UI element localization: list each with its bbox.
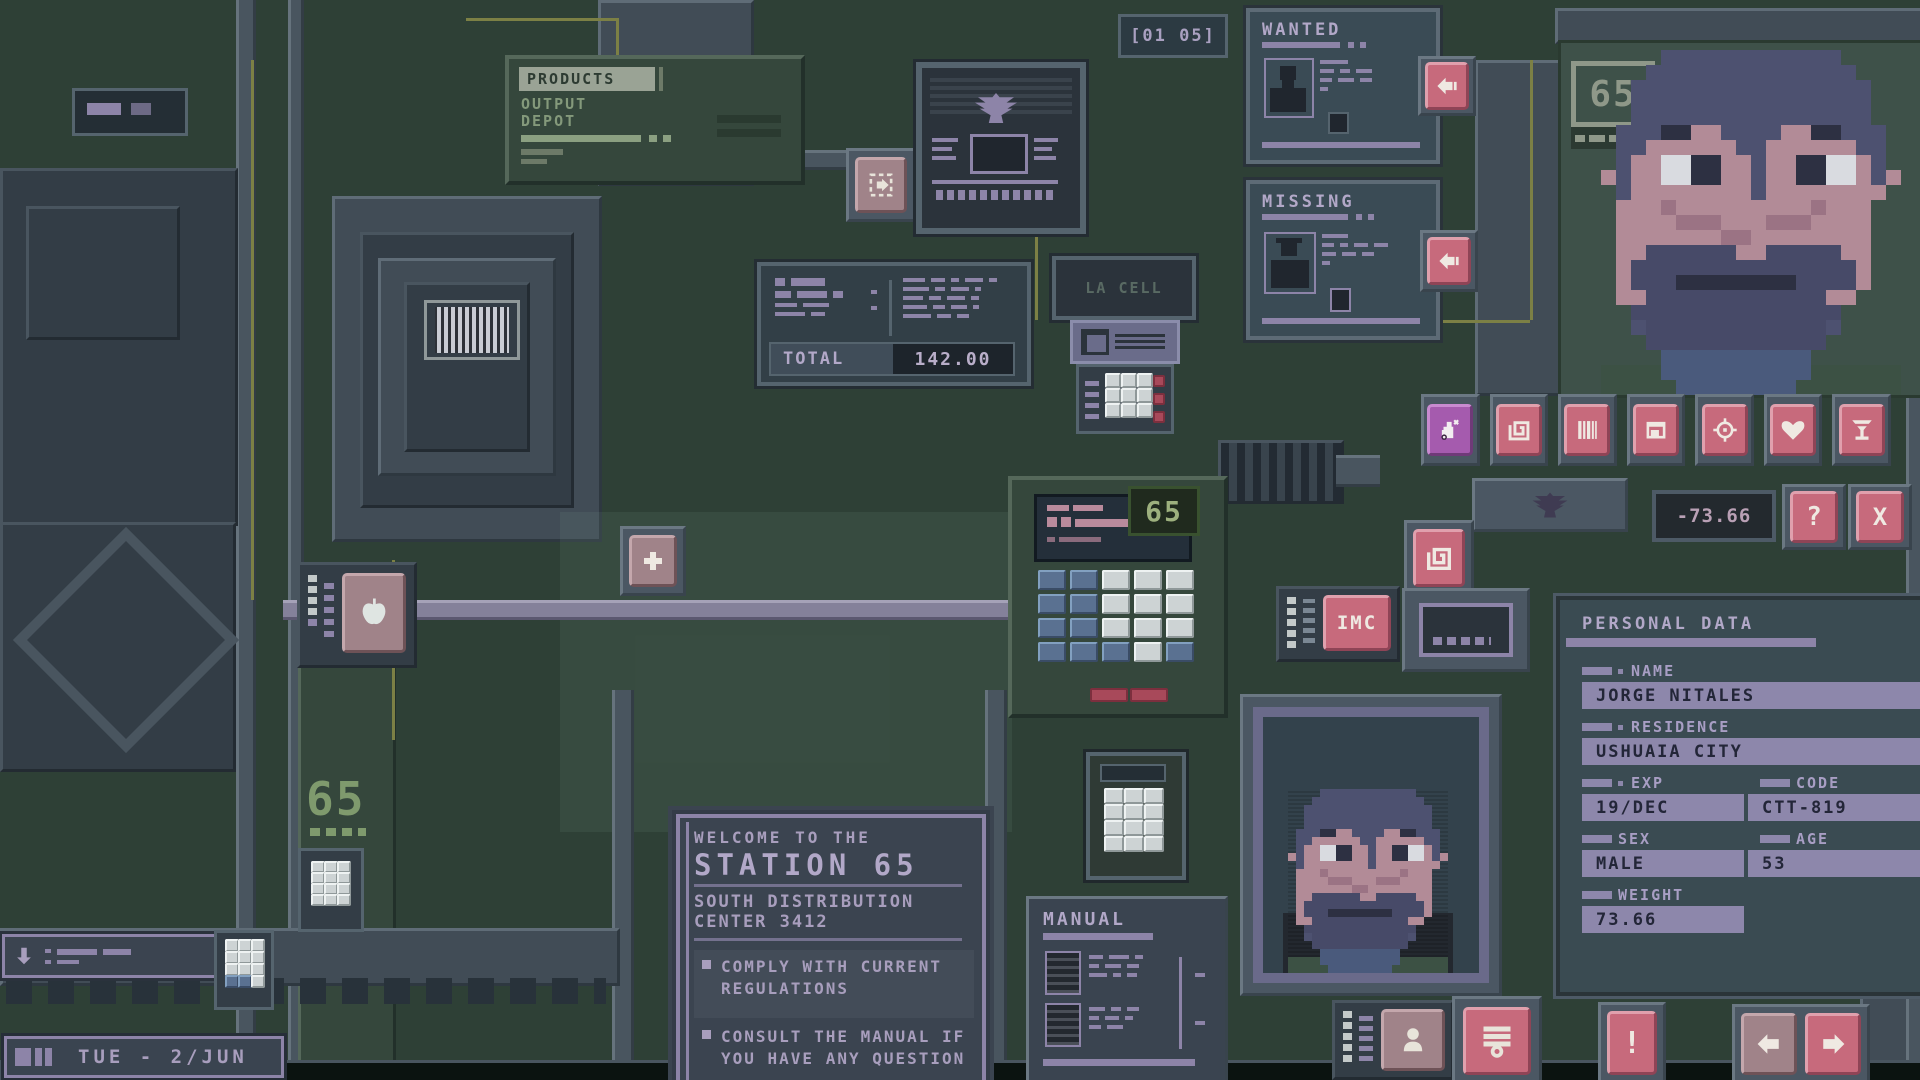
key[interactable]	[1137, 373, 1153, 388]
indicator-glyphs	[324, 577, 334, 637]
key[interactable]	[1104, 788, 1124, 804]
personal-data-title: PERSONAL DATA	[1582, 614, 1754, 634]
ticker-display	[2, 934, 222, 978]
wall-keypad	[214, 930, 274, 1010]
panel	[1218, 440, 1344, 504]
dot	[1348, 42, 1354, 48]
arrow-left-bar-icon	[1436, 75, 1458, 97]
decor-dash	[521, 149, 563, 155]
indicator-glyphs	[1359, 1013, 1373, 1061]
heart-icon	[1780, 417, 1806, 443]
nav-frame	[1732, 1004, 1870, 1080]
toolbar-slot	[1627, 394, 1686, 466]
photo-box	[1264, 232, 1316, 294]
keypad-screen	[1100, 764, 1166, 782]
capture-icon	[867, 171, 895, 199]
customer-portrait	[1601, 50, 1901, 395]
register-red-key[interactable]	[1090, 688, 1128, 702]
missing-title: MISSING	[1262, 192, 1355, 212]
scroll-marker	[1195, 1021, 1205, 1025]
window-icon	[1081, 329, 1109, 355]
indicator-column	[308, 575, 317, 626]
total-row: TOTAL 142.00	[769, 342, 1015, 376]
key[interactable]	[1102, 570, 1130, 590]
exp-value: 19/DEC	[1582, 794, 1744, 821]
key[interactable]	[1124, 804, 1144, 820]
code-value: CTT-819	[1748, 794, 1920, 821]
total-label: TOTAL	[771, 344, 893, 374]
imc-button[interactable]: IMC	[1323, 595, 1391, 651]
key[interactable]	[1166, 594, 1194, 614]
dot	[871, 290, 877, 294]
sex-label: SEX	[1600, 830, 1651, 848]
key[interactable]	[1105, 403, 1121, 418]
indicator-glyphs	[1303, 599, 1315, 643]
key[interactable]	[311, 894, 325, 906]
toolbar-button-cocktail[interactable]	[1839, 404, 1885, 456]
manual-panel[interactable]: MANUAL	[1026, 896, 1228, 1080]
silhouette-neck	[1282, 80, 1294, 88]
plus-frame	[620, 526, 686, 596]
scroll-marker	[1195, 973, 1205, 977]
close-frame: X	[1848, 484, 1912, 550]
nav-right-button[interactable]	[1805, 1013, 1861, 1075]
alert-frame: !	[1598, 1002, 1666, 1080]
keypad-device	[1086, 752, 1186, 880]
page-counter: [01 05]	[1118, 14, 1228, 58]
keypad-labels	[1085, 375, 1099, 419]
key[interactable]	[1102, 594, 1130, 614]
capture-frame	[846, 148, 916, 222]
pipe	[1336, 455, 1380, 487]
help-button[interactable]: ?	[1790, 491, 1838, 543]
toolbar-button-spiral[interactable]	[1496, 404, 1542, 456]
display-block	[87, 103, 121, 115]
key[interactable]	[1104, 820, 1124, 836]
age-value: 53	[1748, 850, 1920, 877]
sign-inner-rule	[686, 822, 689, 1080]
toolbar-button-crate[interactable]	[1633, 404, 1679, 456]
products-panel: PRODUCTS OUTPUT DEPOT	[505, 55, 805, 185]
certificate-rule	[932, 180, 1058, 184]
key[interactable]	[1166, 642, 1194, 662]
bullet-square	[702, 1030, 711, 1039]
key[interactable]	[1104, 836, 1124, 852]
inspection-toolbar	[1421, 394, 1891, 462]
cell-display-text: LA CELL	[1085, 279, 1162, 297]
bottom-bar	[1262, 142, 1420, 148]
date-text: TUE - 2/JUN	[78, 1046, 248, 1068]
slot-device	[1402, 588, 1530, 672]
accent-wire	[1530, 60, 1533, 320]
eagle-plate	[1472, 478, 1628, 532]
manual-scrollbar[interactable]	[1179, 957, 1182, 1049]
key[interactable]	[251, 975, 265, 988]
red-dot-key	[1153, 393, 1165, 405]
barcode-icon	[1574, 417, 1600, 443]
total-value: 142.00	[893, 344, 1013, 374]
soap-ban-icon	[1437, 417, 1463, 443]
photo-box	[1264, 58, 1314, 118]
pipe	[612, 690, 634, 1080]
key[interactable]	[1070, 594, 1098, 614]
certificate-photo	[970, 134, 1028, 174]
key[interactable]	[1038, 570, 1066, 590]
cocktail-icon	[1849, 417, 1875, 443]
citizen-button[interactable]	[1381, 1009, 1445, 1071]
barcode-screen	[424, 300, 520, 360]
plus-button[interactable]	[629, 535, 677, 587]
progress-tick	[663, 135, 671, 142]
title-underline	[1043, 933, 1153, 940]
subpanel-lines	[1115, 331, 1165, 349]
title-underline	[1262, 214, 1348, 220]
toolbar-button-heart[interactable]	[1770, 404, 1816, 456]
toolbar-button-target[interactable]	[1702, 404, 1748, 456]
dot	[1360, 42, 1366, 48]
key[interactable]	[1144, 804, 1164, 820]
eagle-icon	[1530, 490, 1570, 520]
arrow-left-bar-icon	[1438, 250, 1460, 272]
bottom-bar	[1043, 1059, 1195, 1066]
pillar-graffiti: 65	[306, 772, 378, 826]
silhouette-head	[1281, 243, 1297, 256]
capture-button[interactable]	[855, 157, 907, 213]
at-button[interactable]	[1413, 529, 1465, 587]
key[interactable]	[1038, 642, 1066, 662]
spiral-icon	[1506, 417, 1532, 443]
indicator-column	[1287, 597, 1296, 648]
panel	[1555, 8, 1920, 44]
receipt-right	[903, 278, 997, 318]
vent-slot	[717, 129, 781, 137]
toolbar-slot	[1695, 394, 1754, 466]
certificate-left-lines	[932, 138, 958, 160]
key[interactable]	[324, 894, 338, 906]
poster-lines	[1322, 234, 1388, 265]
progress-tick	[649, 135, 657, 142]
ticker-lines	[45, 949, 131, 964]
age-label: AGE	[1778, 830, 1829, 848]
slot-opening	[1419, 603, 1513, 657]
products-title: PRODUCTS	[519, 67, 653, 91]
cell-keypad	[1076, 364, 1174, 434]
toolbar-button-barcode[interactable]	[1564, 404, 1610, 456]
eagle-icon	[972, 90, 1020, 126]
missing-arrow-button[interactable]	[1427, 237, 1471, 285]
key[interactable]	[225, 975, 239, 988]
key[interactable]	[1121, 373, 1137, 388]
help-frame: ?	[1782, 484, 1846, 550]
game-screen: PRODUCTS OUTPUT DEPOT [01 05] WANTED	[0, 0, 1920, 1080]
bullet-square	[702, 960, 711, 969]
imc-device: IMC	[1276, 586, 1400, 662]
dispatch-button[interactable]	[1463, 1007, 1531, 1075]
wanted-prev-frame	[1418, 56, 1476, 116]
panel	[1475, 60, 1561, 396]
key[interactable]	[1144, 820, 1164, 836]
name-label: NAME	[1600, 662, 1675, 680]
key[interactable]	[337, 894, 351, 906]
dispatch-frame	[1452, 996, 1542, 1080]
graffiti-underline	[310, 828, 366, 836]
id-photo-frame	[1240, 694, 1502, 996]
nav-left-button[interactable]	[1741, 1013, 1797, 1075]
sex-value: MALE	[1582, 850, 1744, 877]
key[interactable]	[1038, 594, 1066, 614]
accent-wire	[251, 60, 254, 600]
personal-data-panel: PERSONAL DATA NAME JORGE NITALES RESIDEN…	[1556, 596, 1920, 996]
apple-device	[297, 562, 417, 668]
silhouette-body	[1270, 88, 1306, 112]
cell-device-screen: LA CELL	[1052, 256, 1196, 320]
key[interactable]	[238, 975, 252, 988]
welcome-sign: WELCOME TO THE STATION 65 SOUTH DISTRIBU…	[676, 814, 986, 1080]
rule-text: COMPLY WITH CURRENT REGULATIONS	[721, 956, 966, 1012]
sign-rule	[694, 884, 962, 887]
weight-label: WEIGHT	[1600, 886, 1684, 904]
bottom-bar	[1262, 318, 1420, 324]
apple-icon	[354, 593, 394, 633]
welcome-sub1: SOUTH DISTRIBUTION	[694, 892, 914, 912]
progress-bar	[521, 135, 641, 142]
name-value: JORGE NITALES	[1582, 682, 1920, 709]
mini-display	[72, 88, 188, 136]
missing-poster[interactable]: MISSING	[1246, 180, 1440, 340]
key[interactable]	[1166, 618, 1194, 638]
certificate-plaque	[916, 62, 1086, 234]
products-line2: DEPOT	[521, 112, 576, 130]
toolbar-slot	[1490, 394, 1549, 466]
receipt-display: TOTAL 142.00	[757, 262, 1031, 386]
key[interactable]	[1104, 804, 1124, 820]
manual-page-thumb[interactable]	[1045, 951, 1081, 995]
register-keypad[interactable]	[1038, 570, 1198, 680]
key[interactable]	[1134, 570, 1162, 590]
key[interactable]	[1137, 403, 1153, 418]
wanted-title: WANTED	[1262, 20, 1341, 40]
key[interactable]	[1070, 618, 1098, 638]
toolbar-slot	[1764, 394, 1823, 466]
display-block	[131, 103, 151, 115]
exp-label: EXP	[1600, 774, 1664, 792]
key[interactable]	[1070, 570, 1098, 590]
welcome-sub2: CENTER 3412	[694, 912, 829, 932]
crate-icon	[1643, 417, 1669, 443]
accent-wire	[466, 18, 616, 21]
manual-entry-lines	[1089, 955, 1143, 977]
red-dot-key	[1153, 411, 1165, 423]
dot	[1356, 214, 1362, 220]
title-underline	[1262, 42, 1340, 48]
certificate-caption-glyphs	[936, 190, 1054, 200]
residence-value: USHUAIA CITY	[1582, 738, 1920, 765]
key[interactable]	[1102, 642, 1130, 662]
dot	[871, 306, 877, 310]
citizen-device	[1332, 1000, 1454, 1080]
certificate-right-lines	[1034, 138, 1058, 160]
welcome-title: STATION 65	[694, 848, 919, 882]
sign-rule	[694, 938, 962, 941]
key[interactable]	[1105, 373, 1121, 388]
key[interactable]	[1134, 618, 1162, 638]
arrow-right-icon	[1820, 1031, 1846, 1057]
alert-button[interactable]: !	[1607, 1011, 1657, 1075]
key[interactable]	[1102, 618, 1130, 638]
manual-title: MANUAL	[1043, 909, 1126, 930]
register-red-key[interactable]	[1130, 688, 1168, 702]
rule-item: CONSULT THE MANUAL IF YOU HAVE ANY QUEST…	[694, 1020, 974, 1080]
arrow-left-icon	[1756, 1031, 1782, 1057]
key[interactable]	[1134, 642, 1162, 662]
phone-device	[298, 848, 364, 932]
manual-entry-lines	[1089, 1007, 1139, 1029]
silhouette-body	[1271, 260, 1309, 288]
key[interactable]	[1105, 388, 1121, 403]
key[interactable]	[1124, 836, 1144, 852]
key[interactable]	[1070, 642, 1098, 662]
poster-lines	[1320, 60, 1372, 91]
pipe	[985, 690, 1007, 1080]
key[interactable]	[1124, 820, 1144, 836]
dot	[1368, 214, 1374, 220]
stamp-stack-icon	[1477, 1021, 1517, 1061]
toolbar-slot	[1421, 394, 1480, 466]
plus-icon	[641, 549, 665, 573]
key[interactable]	[1144, 836, 1164, 852]
stamp-box	[1328, 112, 1349, 134]
balance-display: -73.66	[1652, 490, 1776, 542]
toolbar-slot	[1832, 394, 1891, 466]
receipt-left	[775, 278, 843, 316]
key[interactable]	[1144, 788, 1164, 804]
id-photo-portrait	[1288, 789, 1448, 973]
date-display: TUE - 2/JUN	[4, 1036, 284, 1078]
at-frame	[1404, 520, 1474, 596]
key[interactable]	[1038, 618, 1066, 638]
toolbar-button-soap-ban[interactable]	[1427, 404, 1473, 456]
missing-prev-frame	[1420, 230, 1478, 292]
weight-value: 73.66	[1582, 906, 1744, 933]
decor-bar	[651, 67, 655, 91]
divider	[889, 280, 892, 336]
key[interactable]	[1124, 788, 1144, 804]
products-line1: OUTPUT	[521, 95, 587, 113]
target-icon	[1712, 417, 1738, 443]
silhouette-head	[1280, 66, 1296, 80]
key[interactable]	[1134, 594, 1162, 614]
panel	[26, 206, 180, 340]
register-lcd: 65	[1128, 486, 1200, 536]
key[interactable]	[1137, 388, 1153, 403]
decor-bar	[659, 67, 663, 91]
rule-text: CONSULT THE MANUAL IF YOU HAVE ANY QUEST…	[721, 1026, 966, 1080]
residence-label: RESIDENCE	[1600, 718, 1730, 736]
customer-portrait-panel: 65	[1558, 40, 1920, 398]
key[interactable]	[1166, 570, 1194, 590]
stamp-box	[1330, 288, 1351, 312]
decor-dash	[521, 159, 547, 164]
manual-page-thumb[interactable]	[1045, 1003, 1081, 1047]
welcome-intro: WELCOME TO THE	[694, 828, 871, 847]
wanted-arrow-button[interactable]	[1425, 62, 1469, 110]
red-dot-key	[1153, 375, 1165, 387]
title-underline	[1566, 638, 1816, 647]
slot-teeth	[1433, 637, 1491, 645]
download-arrow-icon	[13, 945, 35, 967]
panel	[6, 978, 606, 1004]
vent-slot	[717, 115, 781, 123]
rule-item: COMPLY WITH CURRENT REGULATIONS	[694, 950, 974, 1018]
key[interactable]	[1121, 388, 1137, 403]
id-photo-screen	[1253, 707, 1489, 983]
close-button[interactable]: X	[1856, 491, 1904, 543]
toolbar-slot	[1558, 394, 1617, 466]
indicator-column	[1343, 1011, 1352, 1062]
key[interactable]	[1121, 403, 1137, 418]
person-icon	[1397, 1024, 1429, 1056]
cell-subpanel	[1070, 320, 1180, 364]
code-label: CODE	[1778, 774, 1840, 792]
apple-button[interactable]	[342, 573, 406, 653]
spiral-icon	[1424, 543, 1454, 573]
wanted-poster[interactable]: WANTED	[1246, 8, 1440, 164]
